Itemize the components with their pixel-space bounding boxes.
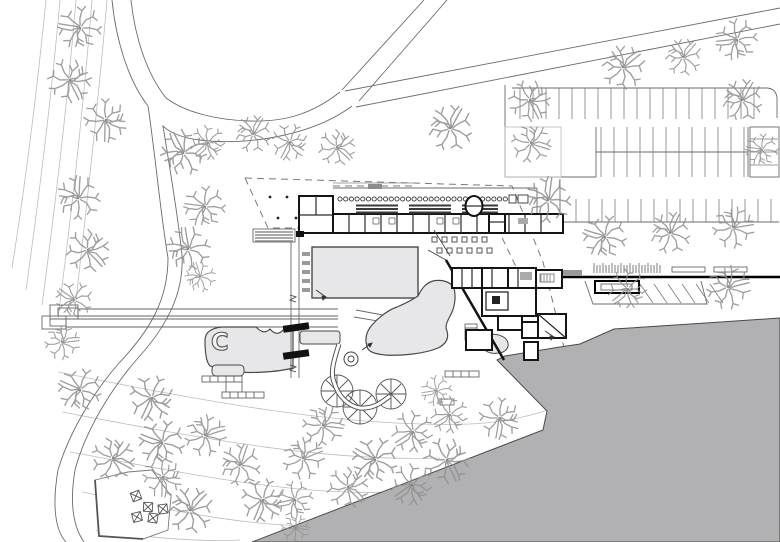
slide-tower [344, 352, 358, 366]
tree-icon [428, 104, 473, 150]
starting-blocks [302, 252, 310, 292]
tree-icon [128, 374, 176, 423]
tree-icon [56, 367, 104, 414]
pool-label-c: C [211, 328, 229, 356]
tree-icon [64, 226, 114, 275]
bench [672, 267, 705, 272]
tree-icon [55, 282, 91, 317]
tree-icon [700, 258, 757, 315]
tree-icon [180, 257, 220, 297]
changing-wing [253, 183, 563, 242]
tree-icon [504, 74, 557, 127]
parking-lot [505, 85, 779, 222]
stair-block [518, 218, 528, 224]
leisure-pool-left-step [212, 365, 244, 376]
tribune-steps [42, 305, 420, 329]
tree-icon [188, 123, 227, 163]
tree-icon [178, 182, 230, 233]
site-plan-svg: C [0, 0, 780, 542]
sauna-room [489, 214, 505, 233]
tree-icon [351, 437, 398, 483]
tree-icon [579, 212, 630, 262]
lake [252, 318, 780, 542]
tree-icon [598, 41, 649, 93]
tree-icon [240, 477, 287, 525]
tree-icon [78, 92, 134, 148]
tree-icon [741, 130, 780, 170]
tree-icon [216, 441, 263, 489]
plan-canvas: C [0, 0, 780, 542]
water-slide [321, 344, 406, 424]
room-row [333, 214, 563, 233]
tree-icon [52, 2, 106, 55]
main-pool [312, 247, 418, 298]
covered-walk [428, 230, 450, 260]
tree-icon [709, 13, 763, 67]
tree-icon [271, 123, 308, 161]
terrace-tables [432, 237, 492, 253]
tree-icon [648, 210, 692, 255]
tree-icon [270, 476, 319, 525]
tree-icon [153, 124, 211, 182]
tree-icon [475, 393, 526, 444]
info-kiosk [595, 281, 639, 293]
tree-icon [317, 127, 357, 166]
tree-icon [166, 484, 215, 534]
roof-block [368, 184, 382, 189]
tree-icon [50, 170, 105, 226]
tree-icon [706, 199, 761, 254]
channel-pool [300, 331, 340, 344]
